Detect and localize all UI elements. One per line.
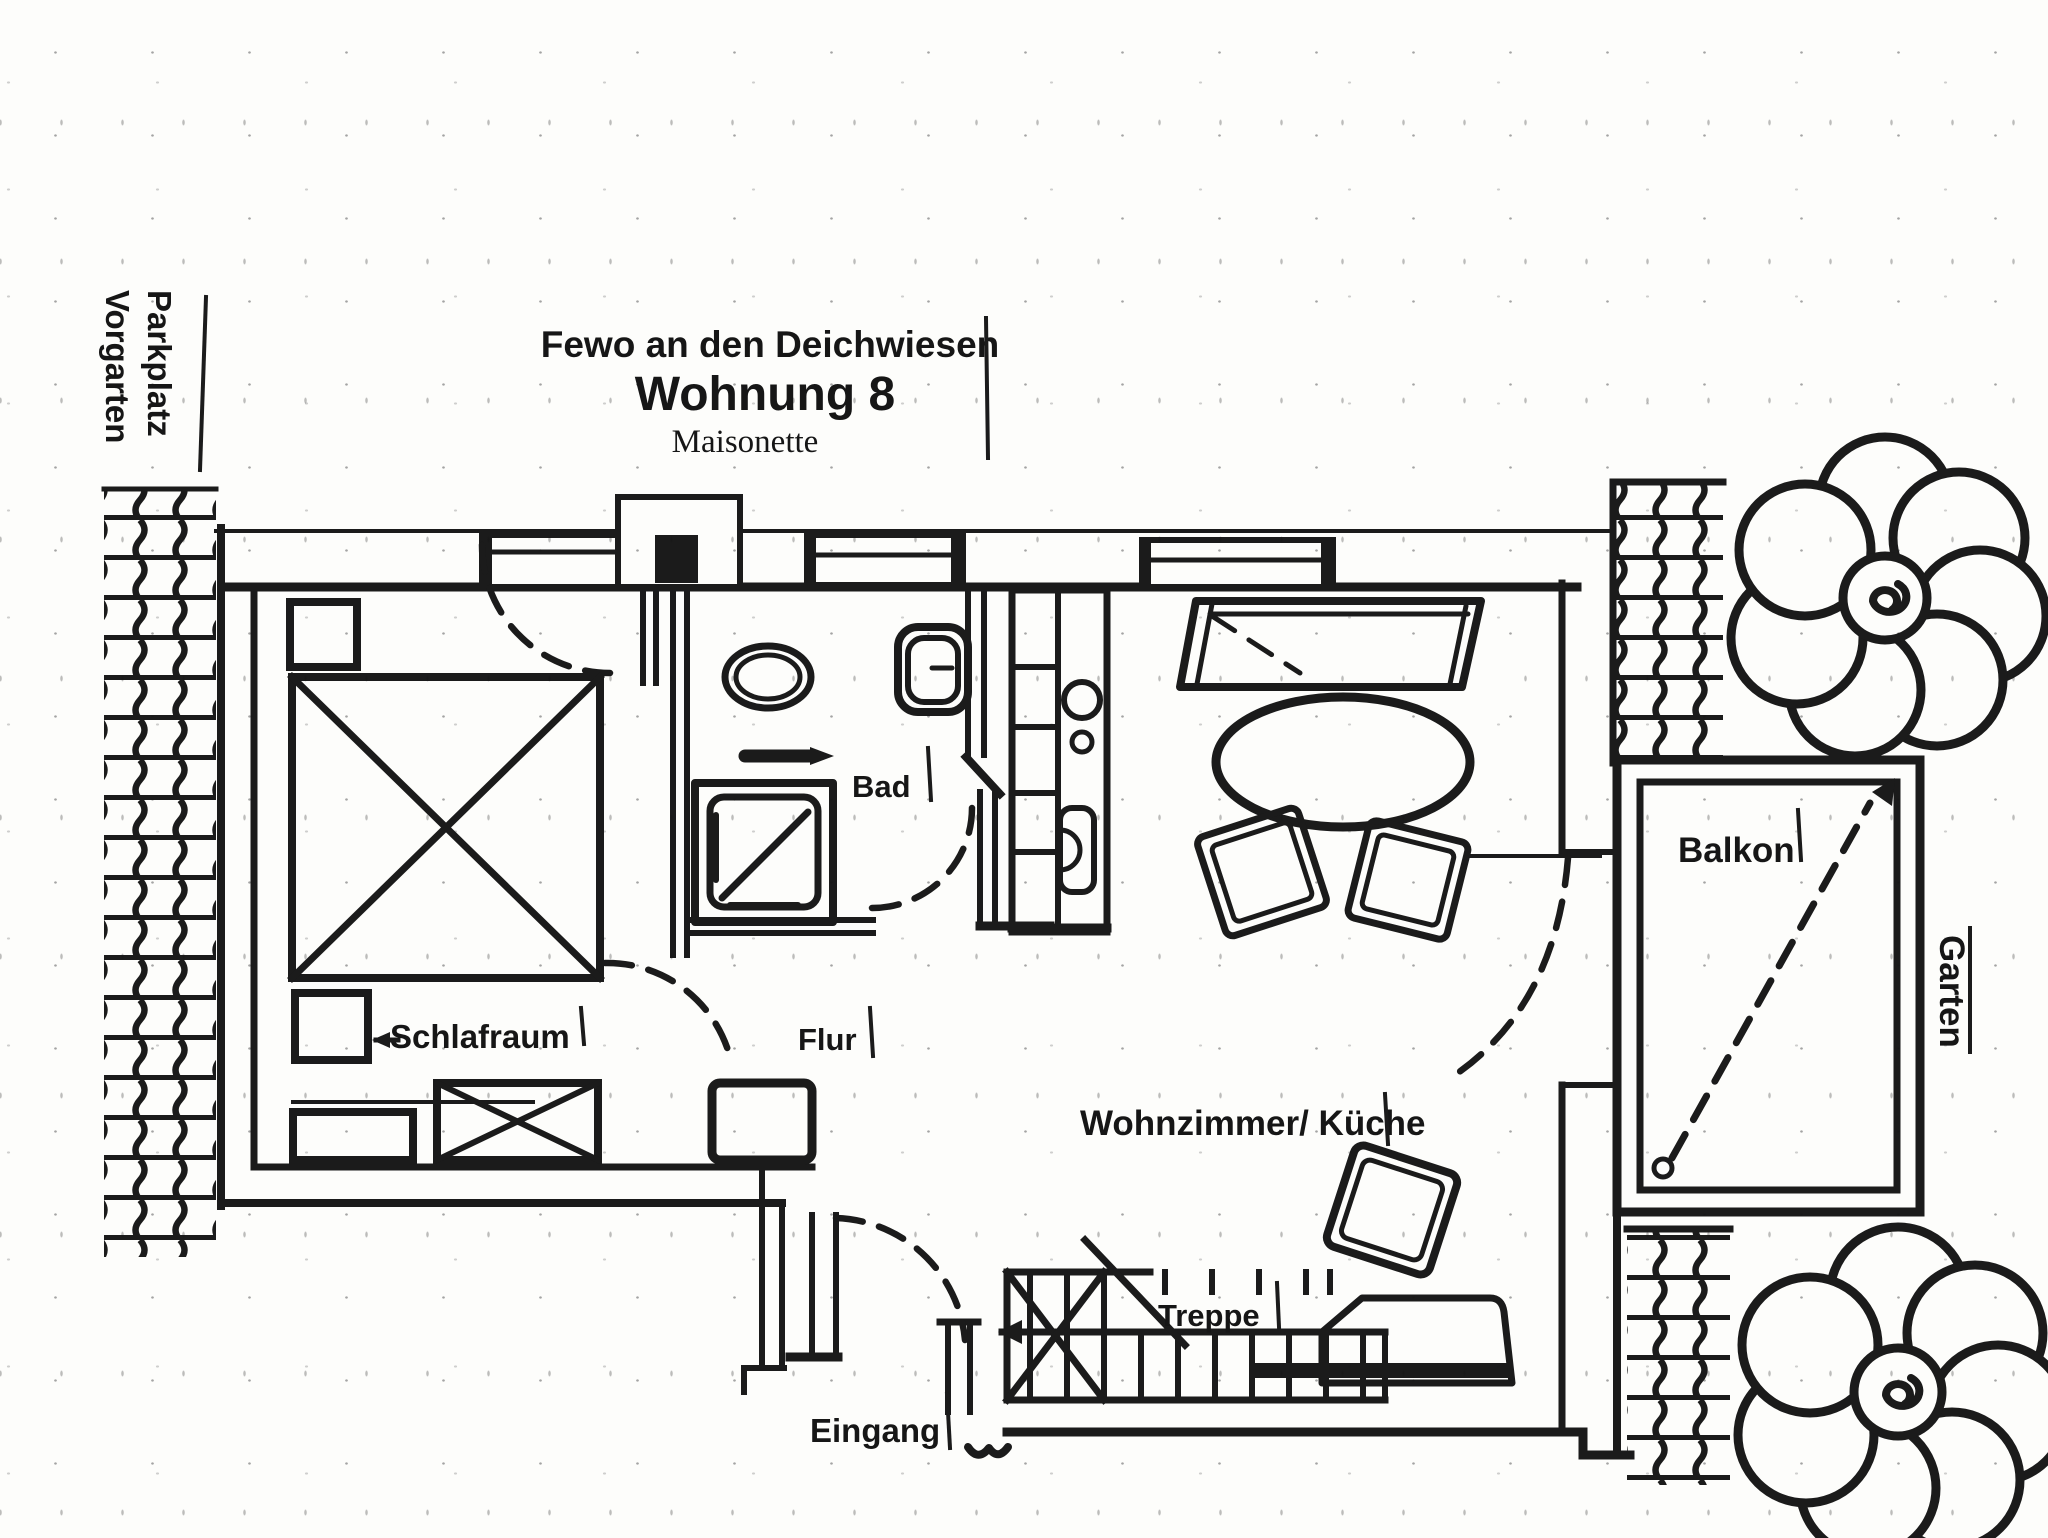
chair-right [1346, 819, 1469, 941]
label-garten: Garten [1932, 935, 1971, 1048]
dining-table [1216, 697, 1470, 827]
label-eingang: Eingang [810, 1412, 940, 1449]
balcony [1617, 760, 1920, 1212]
garden-wall-hatch-bottom [1627, 1227, 1730, 1485]
bedroom-furniture [290, 602, 600, 1160]
title-line3: Maisonette [672, 424, 819, 460]
vorgarten-tick [200, 297, 206, 470]
balkon-tick [1798, 810, 1801, 860]
treppe-tick [1277, 1283, 1279, 1327]
dresser [293, 1112, 413, 1160]
top-wall-openings [479, 497, 1333, 587]
flur-cabinet [712, 1083, 812, 1160]
bedroom-flur-door-arc [605, 963, 730, 1057]
kitchen-basin-lower [1060, 808, 1094, 892]
armchair [1324, 1143, 1459, 1277]
label-bad: Bad [852, 769, 911, 804]
flower-top-right-icon [1731, 437, 2046, 756]
toilet [898, 627, 968, 712]
label-treppe: Treppe [1158, 1298, 1260, 1333]
flur-tick [870, 1008, 873, 1056]
crossed-cabinet [437, 1083, 598, 1160]
garden-wall-hatch-top [1613, 482, 1723, 763]
sofa [1180, 601, 1481, 687]
label-balkon: Balkon [1678, 831, 1795, 870]
kitchen-sink-basin [1064, 682, 1100, 718]
bad-tick [928, 748, 931, 800]
schlafraum-tick [581, 1008, 584, 1044]
label-schlafraum: Schlafraum [390, 1018, 570, 1055]
title-line1: Fewo an den Deichwiesen [541, 324, 1000, 365]
vorgarten-wall-hatch [104, 487, 216, 1257]
shower [695, 783, 833, 922]
label-flur: Flur [798, 1022, 857, 1057]
title-tick [986, 318, 988, 458]
nightstand-top [290, 602, 357, 667]
towel-rail [745, 747, 834, 765]
balcony-door-arc [1455, 858, 1568, 1075]
floorplan-sheet: Fewo an den Deichwiesen Wohnung 8 Maison… [0, 0, 2048, 1538]
bath-door-arc [872, 808, 972, 908]
kitchen-counter [1012, 590, 1107, 932]
interior-walls [643, 590, 1050, 955]
flower-bottom-right-icon [1738, 1227, 2048, 1538]
bathroom-fixtures [695, 627, 968, 922]
living-room-furniture [1180, 601, 1512, 1383]
label-parkplatz: Parkplatz [141, 290, 178, 437]
title-line2: Wohnung 8 [635, 368, 895, 421]
floorplan-drawing: Fewo an den Deichwiesen Wohnung 8 Maison… [0, 0, 2048, 1538]
nightstand-bottom [295, 993, 368, 1060]
label-vorgarten: Vorgarten [99, 290, 136, 443]
label-wohnzimmer-kueche: Wohnzimmer/ Küche [1080, 1104, 1426, 1143]
kitchen-sink-small [1072, 732, 1092, 752]
